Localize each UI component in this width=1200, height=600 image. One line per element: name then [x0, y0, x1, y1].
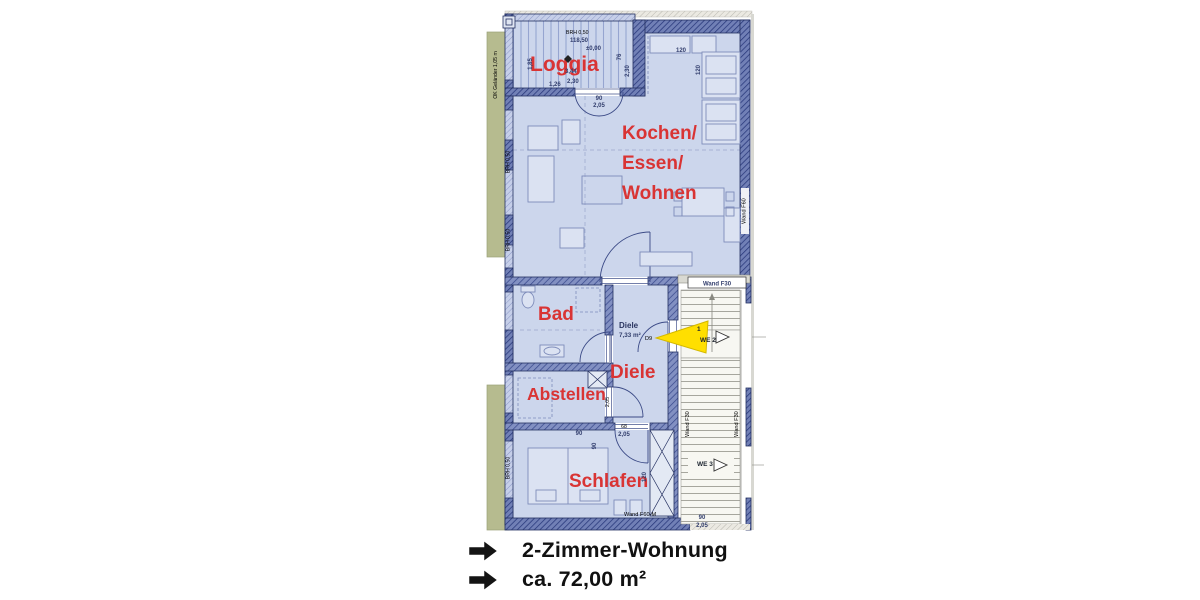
dim-schlafen-side: 90 [592, 442, 598, 449]
dim-loggia-right: 2,30 [625, 65, 631, 77]
brh-label-1: BRH 0,50 [506, 151, 512, 174]
brh-label-2: BRH 0,50 [506, 229, 512, 252]
wand-f30-top-label: Wand F30 [703, 282, 732, 288]
arrow-bullet-icon [468, 570, 498, 590]
wand-f60m-label: Wand F60-M [624, 512, 656, 518]
room-label-kitchen-3: Wohnen [622, 183, 697, 204]
we2-label: WE 2 [700, 337, 716, 344]
floorplan-drawing: Loggia Kochen/ Essen/ Wohnen Bad Diele A… [0, 0, 1200, 600]
wand-f30-right-label: Wand F30 [734, 411, 740, 437]
wall-top [633, 20, 750, 33]
dim-loggia-2: 2,30 [567, 79, 579, 85]
floorplan-page: Loggia Kochen/ Essen/ Wohnen Bad Diele A… [0, 0, 1200, 600]
arrow-bullet-icon [468, 541, 498, 561]
brh-label-3: BRH 0,50 [506, 457, 512, 480]
dim-stair-w: 90 [699, 515, 706, 521]
dim-loggia-bottom: 1,26 [549, 82, 561, 88]
toilet [521, 286, 535, 292]
dim-loggia-1: 3,44 [565, 69, 577, 75]
summary-row-area: ca. 72,00 m² [468, 567, 728, 592]
wand-f60-label: Wand F60 [742, 198, 748, 224]
hall-small-label: Diele [619, 321, 639, 330]
stair-flight-lower [681, 358, 740, 524]
dim-abst-v: 2,05 [605, 397, 611, 407]
we3-label: WE 3 [697, 461, 713, 468]
stairwell [678, 275, 750, 530]
room-area-diele [613, 285, 668, 423]
door-id-label: D9 [645, 336, 652, 342]
dim-french-h: 2,05 [593, 103, 605, 109]
dim-schlafen-90: 90 [576, 431, 583, 437]
wand-f30-left-label: Wand F30 [685, 411, 691, 437]
wall-right [740, 20, 750, 284]
hall-area-label: 7,33 m² [619, 332, 641, 339]
shaft-schlafen [650, 430, 674, 516]
room-label-abstellen: Abstellen [527, 384, 606, 404]
room-label-kitchen-1: Kochen/ [622, 123, 698, 144]
dim-stair-h: 2,05 [696, 523, 708, 529]
dim-kitchen-top: 120 [676, 48, 687, 54]
dim-kitchen-side: 120 [696, 64, 702, 75]
summary-block: 2-Zimmer-Wohnung ca. 72,00 m² [468, 538, 728, 592]
stair-flight-upper [681, 290, 740, 330]
dim-level-height: 118,50 [570, 38, 589, 44]
dim-hall-68: 68 [621, 424, 627, 430]
apartment-area-label: ca. 72,00 m² [522, 567, 646, 592]
stair-unit-number: 1 [697, 326, 701, 333]
dim-level-zero: ±0,00 [586, 46, 602, 52]
summary-row-type: 2-Zimmer-Wohnung [468, 538, 728, 563]
dim-loggia-76: 76 [617, 53, 623, 60]
wall-bottom [505, 518, 690, 530]
dim-french-w: 90 [596, 96, 603, 102]
gelaender-label: OK Geländer 1,05 m [493, 51, 499, 99]
room-label-kitchen-2: Essen/ [622, 153, 684, 174]
dim-brh-top: BRH 0,50 [566, 30, 589, 36]
dim-loggia-left: 1,85 [528, 58, 534, 70]
dim-shaft-120: 120 [642, 471, 648, 482]
apartment-type-label: 2-Zimmer-Wohnung [522, 538, 728, 563]
room-label-schlafen: Schlafen [569, 471, 648, 492]
room-label-bad: Bad [538, 304, 574, 325]
dim-hall-205: 2,05 [618, 432, 630, 438]
room-label-diele: Diele [610, 362, 655, 383]
